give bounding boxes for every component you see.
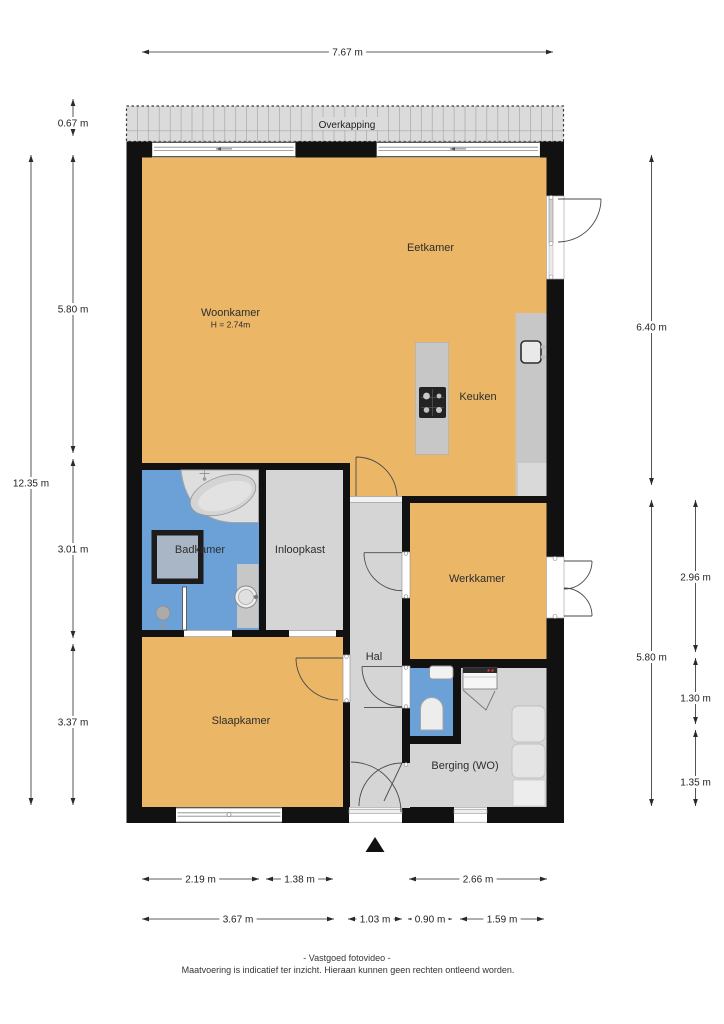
svg-text:5.80 m: 5.80 m — [636, 653, 667, 664]
svg-text:1.03 m: 1.03 m — [360, 915, 391, 926]
svg-text:Woonkamer: Woonkamer — [201, 307, 260, 319]
svg-text:Keuken: Keuken — [459, 391, 496, 403]
svg-text:Inloopkast: Inloopkast — [275, 544, 325, 556]
svg-text:2.19 m: 2.19 m — [185, 875, 216, 886]
svg-text:12.35 m: 12.35 m — [13, 479, 49, 490]
svg-text:Werkkamer: Werkkamer — [449, 573, 505, 585]
svg-text:0.90 m: 0.90 m — [415, 915, 446, 926]
svg-text:3.67 m: 3.67 m — [223, 915, 254, 926]
svg-text:Eetkamer: Eetkamer — [407, 242, 454, 254]
svg-text:Maatvoering is indicatief ter: Maatvoering is indicatief ter inzicht. H… — [182, 965, 515, 975]
svg-text:Hal: Hal — [366, 651, 383, 663]
svg-text:Berging (WO): Berging (WO) — [431, 760, 498, 772]
svg-text:1.38 m: 1.38 m — [284, 875, 315, 886]
svg-text:5.80 m: 5.80 m — [58, 305, 89, 316]
svg-text:2.66 m: 2.66 m — [463, 875, 494, 886]
svg-text:6.40 m: 6.40 m — [636, 323, 667, 334]
svg-text:2.96 m: 2.96 m — [680, 573, 711, 584]
svg-text:1.30 m: 1.30 m — [680, 694, 711, 705]
svg-text:3.37 m: 3.37 m — [58, 718, 89, 729]
svg-text:H = 2.74m: H = 2.74m — [211, 320, 250, 330]
svg-text:Overkapping: Overkapping — [319, 120, 376, 131]
svg-text:0.67 m: 0.67 m — [58, 119, 89, 130]
svg-text:Badkamer: Badkamer — [175, 544, 225, 556]
svg-text:1.59 m: 1.59 m — [487, 915, 518, 926]
svg-text:1.35 m: 1.35 m — [680, 778, 711, 789]
svg-text:- Vastgoed fotovideo -: - Vastgoed fotovideo - — [303, 953, 390, 963]
svg-text:Slaapkamer: Slaapkamer — [212, 715, 271, 727]
svg-text:7.67 m: 7.67 m — [332, 48, 363, 59]
svg-text:3.01 m: 3.01 m — [58, 545, 89, 556]
